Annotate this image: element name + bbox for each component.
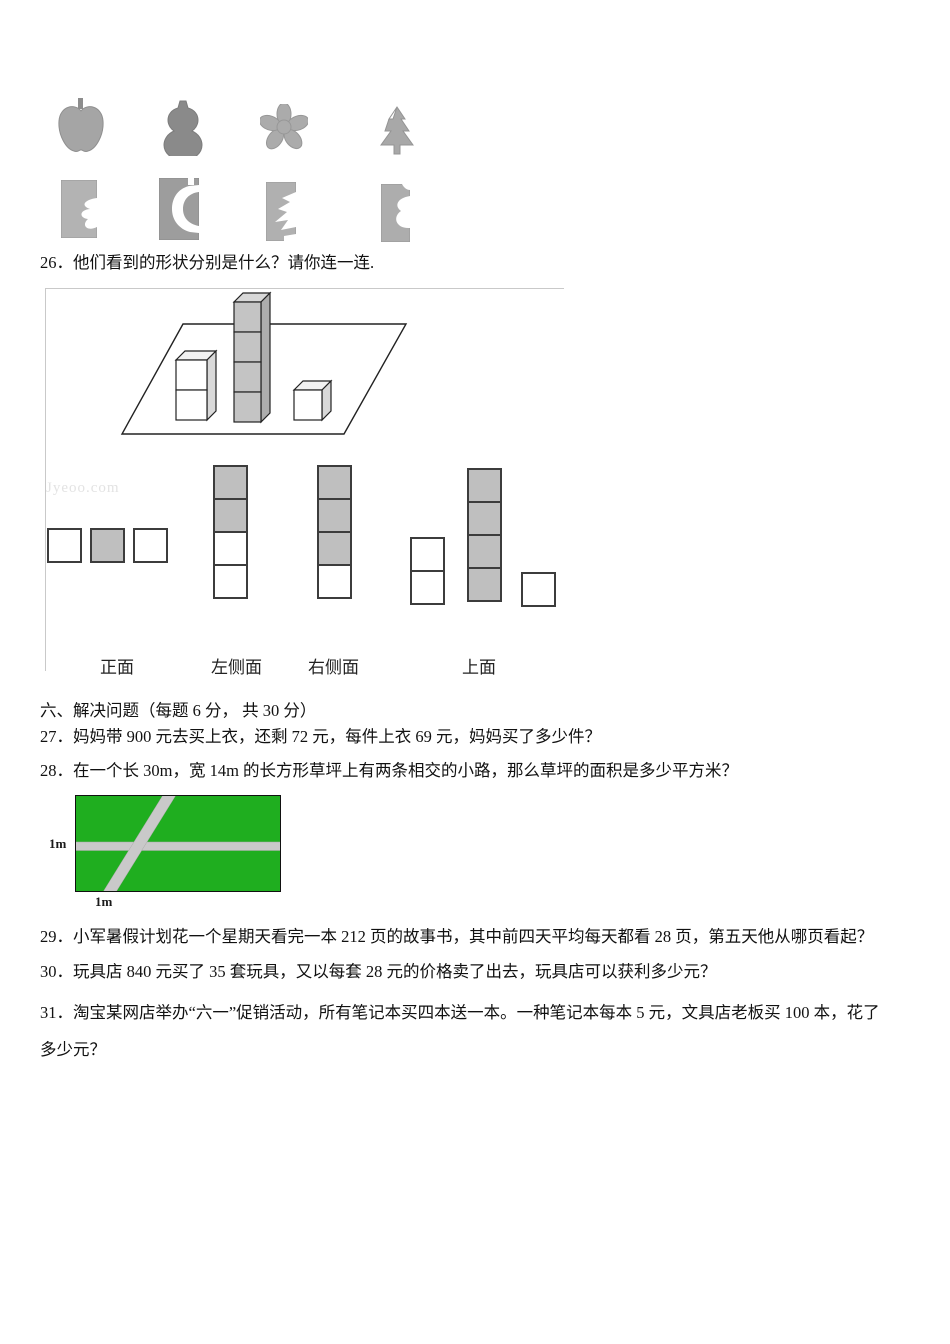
watermark: Jyeoo.com bbox=[46, 480, 120, 497]
view-square-gray bbox=[317, 498, 352, 533]
view-square-gray bbox=[213, 498, 248, 533]
right-side-view-squares bbox=[317, 465, 352, 599]
view-square-gray bbox=[317, 465, 352, 500]
view-square-gray bbox=[467, 534, 502, 569]
label-left-side-view: 左侧面 bbox=[211, 653, 262, 678]
label-right-side-view: 右侧面 bbox=[308, 653, 359, 678]
apple-stamp-icon bbox=[57, 98, 105, 156]
section-6-title: 六、解决问题（每题 6 分， 共 30 分） bbox=[40, 700, 316, 721]
label-front-view: 正面 bbox=[100, 653, 134, 678]
card-with-gourd-cutout-icon bbox=[159, 178, 199, 240]
gourd-stamp-icon bbox=[162, 100, 204, 156]
left-side-view-squares bbox=[213, 465, 248, 599]
question-31-text: 31．淘宝某网店举办“六一”促销活动，所有笔记本买四本送一本。一种笔记本每本 5… bbox=[40, 994, 896, 1068]
path-width-label-bottom: 1m bbox=[95, 894, 112, 910]
top-option-gray-column bbox=[467, 468, 502, 602]
flower-stamp-icon bbox=[260, 104, 308, 150]
question-26-text: 26．他们看到的形状分别是什么？请你连一连. bbox=[40, 252, 374, 273]
card-with-flower-cutout-icon bbox=[61, 180, 97, 238]
front-view-squares bbox=[47, 528, 168, 563]
question-29-text: 29．小军暑假计划花一个星期天看完一本 212 页的故事书，其中前四天平均每天都… bbox=[40, 926, 873, 947]
view-square-white bbox=[317, 564, 352, 599]
view-square-white bbox=[213, 531, 248, 566]
view-square-white bbox=[213, 564, 248, 599]
view-square-gray bbox=[467, 501, 502, 536]
label-top-view: 上面 bbox=[462, 653, 496, 678]
view-square-gray bbox=[90, 528, 125, 563]
view-square-white bbox=[47, 528, 82, 563]
view-square-white bbox=[410, 537, 445, 572]
cube-arrangement-figure bbox=[75, 290, 425, 440]
path-width-label-left: 1m bbox=[49, 836, 66, 852]
top-option-single-square bbox=[521, 572, 556, 607]
question-30-text: 30．玩具店 840 元买了 35 套玩具，又以每套 28 元的价格卖了出去，玩… bbox=[40, 961, 717, 982]
top-option-white-column bbox=[410, 537, 445, 605]
question-28-text: 28．在一个长 30m，宽 14m 的长方形草坪上有两条相交的小路，那么草坪的面… bbox=[40, 760, 738, 781]
view-square-white bbox=[410, 570, 445, 605]
view-square-gray bbox=[467, 468, 502, 503]
question-27-text: 27．妈妈带 900 元去买上衣，还剩 72 元，每件上衣 69 元，妈妈买了多… bbox=[40, 726, 601, 747]
card-with-tree-cutout-icon bbox=[266, 182, 296, 241]
pine-tree-stamp-icon bbox=[376, 106, 418, 156]
card-with-apple-cutout-icon bbox=[381, 184, 410, 242]
view-square-gray bbox=[213, 465, 248, 500]
view-square-gray bbox=[317, 531, 352, 566]
view-square-white bbox=[521, 572, 556, 607]
view-square-white bbox=[133, 528, 168, 563]
exam-page: 26．他们看到的形状分别是什么？请你连一连. Jyeoo.com bbox=[0, 0, 950, 1344]
view-square-gray bbox=[467, 567, 502, 602]
grass-lawn-figure bbox=[75, 795, 281, 892]
